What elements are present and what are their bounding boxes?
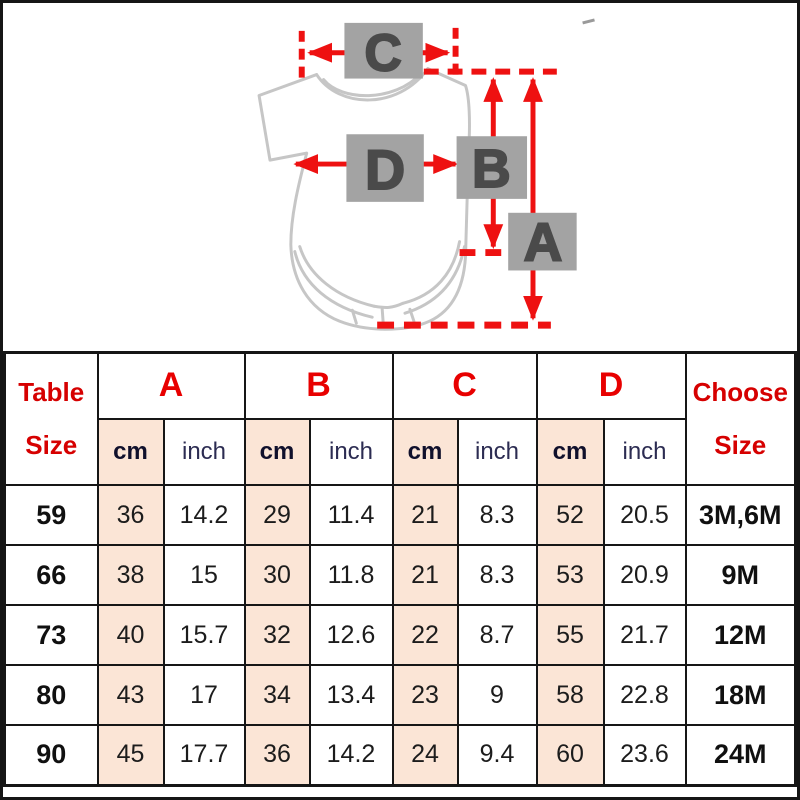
choose-cell: 18M xyxy=(686,665,796,725)
c-cm-cell: 21 xyxy=(393,545,458,605)
onesie-snap-band xyxy=(374,303,403,307)
b-inch-cell: 11.4 xyxy=(310,485,393,545)
table-row-59: 59 36 14.2 29 11.4 21 8.3 52 20.5 3M,6M xyxy=(5,485,796,545)
onesie-right-leg-band-inner xyxy=(403,242,460,304)
unit-header-b-cm: cm xyxy=(245,419,310,485)
a-cm-cell: 45 xyxy=(98,725,164,785)
size-table: Table Size A B C D Choose Size cm inch c… xyxy=(3,351,797,787)
d-cm-cell: 58 xyxy=(537,665,604,725)
unit-header-d-cm: cm xyxy=(537,419,604,485)
group-header-d: D xyxy=(537,353,686,419)
d-inch-cell: 22.8 xyxy=(604,665,686,725)
c-cm-cell: 24 xyxy=(393,725,458,785)
d-cm-cell: 55 xyxy=(537,605,604,665)
group-header-c: C xyxy=(393,353,537,419)
choose-cell: 12M xyxy=(686,605,796,665)
b-cm-cell: 34 xyxy=(245,665,310,725)
b-cm-cell: 36 xyxy=(245,725,310,785)
b-cm-cell: 30 xyxy=(245,545,310,605)
group-header-a: A xyxy=(98,353,245,419)
b-cm-cell: 29 xyxy=(245,485,310,545)
d-inch-cell: 21.7 xyxy=(604,605,686,665)
choose-cell: 9M xyxy=(686,545,796,605)
c-inch-cell: 8.7 xyxy=(458,605,537,665)
corner-header-line1: Table xyxy=(6,377,97,408)
unit-header-b-inch: inch xyxy=(310,419,393,485)
table-row-73: 73 40 15.7 32 12.6 22 8.7 55 21.7 12M xyxy=(5,605,796,665)
b-inch-cell: 12.6 xyxy=(310,605,393,665)
a-inch-cell: 17 xyxy=(164,665,245,725)
b-inch-cell: 14.2 xyxy=(310,725,393,785)
b-inch-cell: 13.4 xyxy=(310,665,393,725)
choose-cell: 24M xyxy=(686,725,796,785)
label-letter-d: D xyxy=(365,139,405,201)
a-cm-cell: 40 xyxy=(98,605,164,665)
size-cell: 59 xyxy=(5,485,98,545)
unit-header-a-inch: inch xyxy=(164,419,245,485)
label-letter-c: C xyxy=(364,24,401,82)
a-inch-cell: 15.7 xyxy=(164,605,245,665)
measurement-diagram: C D B A xyxy=(3,3,797,351)
size-cell: 80 xyxy=(5,665,98,725)
corner-header-cell: Table Size xyxy=(5,353,98,486)
c-inch-cell: 9 xyxy=(458,665,537,725)
size-cell: 73 xyxy=(5,605,98,665)
d-cm-cell: 60 xyxy=(537,725,604,785)
label-letter-a: A xyxy=(524,213,563,273)
size-cell: 90 xyxy=(5,725,98,785)
measure-label-boxes: C D B A xyxy=(344,23,576,273)
choose-cell: 3M,6M xyxy=(686,485,796,545)
onesie-snap-tick-2 xyxy=(382,308,383,322)
c-cm-cell: 23 xyxy=(393,665,458,725)
a-cm-cell: 43 xyxy=(98,665,164,725)
a-inch-cell: 17.7 xyxy=(164,725,245,785)
d-inch-cell: 23.6 xyxy=(604,725,686,785)
a-inch-cell: 14.2 xyxy=(164,485,245,545)
a-cm-cell: 36 xyxy=(98,485,164,545)
unit-header-c-cm: cm xyxy=(393,419,458,485)
onesie-left-leg-band-inner xyxy=(300,247,374,307)
d-inch-cell: 20.9 xyxy=(604,545,686,605)
group-header-b: B xyxy=(245,353,393,419)
label-letter-b: B xyxy=(472,139,511,199)
choose-header-line2: Size xyxy=(687,430,795,461)
a-inch-cell: 15 xyxy=(164,545,245,605)
unit-header-d-inch: inch xyxy=(604,419,686,485)
choose-header-cell: Choose Size xyxy=(686,353,796,486)
a-cm-cell: 38 xyxy=(98,545,164,605)
table-row-80: 80 43 17 34 13.4 23 9 58 22.8 18M xyxy=(5,665,796,725)
b-inch-cell: 11.8 xyxy=(310,545,393,605)
size-cell: 66 xyxy=(5,545,98,605)
table-row-90: 90 45 17.7 36 14.2 24 9.4 60 23.6 24M xyxy=(5,725,796,785)
unit-header-a-cm: cm xyxy=(98,419,164,485)
choose-header-line1: Choose xyxy=(687,377,795,408)
size-chart-image: C D B A Table Size A B C xyxy=(0,0,800,800)
c-inch-cell: 9.4 xyxy=(458,725,537,785)
corner-header-line2: Size xyxy=(6,430,97,461)
unit-header-c-inch: inch xyxy=(458,419,537,485)
d-inch-cell: 20.5 xyxy=(604,485,686,545)
c-inch-cell: 8.3 xyxy=(458,485,537,545)
c-cm-cell: 21 xyxy=(393,485,458,545)
table-row-66: 66 38 15 30 11.8 21 8.3 53 20.9 9M xyxy=(5,545,796,605)
c-inch-cell: 8.3 xyxy=(458,545,537,605)
d-cm-cell: 53 xyxy=(537,545,604,605)
stray-mark xyxy=(583,20,595,23)
b-cm-cell: 32 xyxy=(245,605,310,665)
c-cm-cell: 22 xyxy=(393,605,458,665)
d-cm-cell: 52 xyxy=(537,485,604,545)
